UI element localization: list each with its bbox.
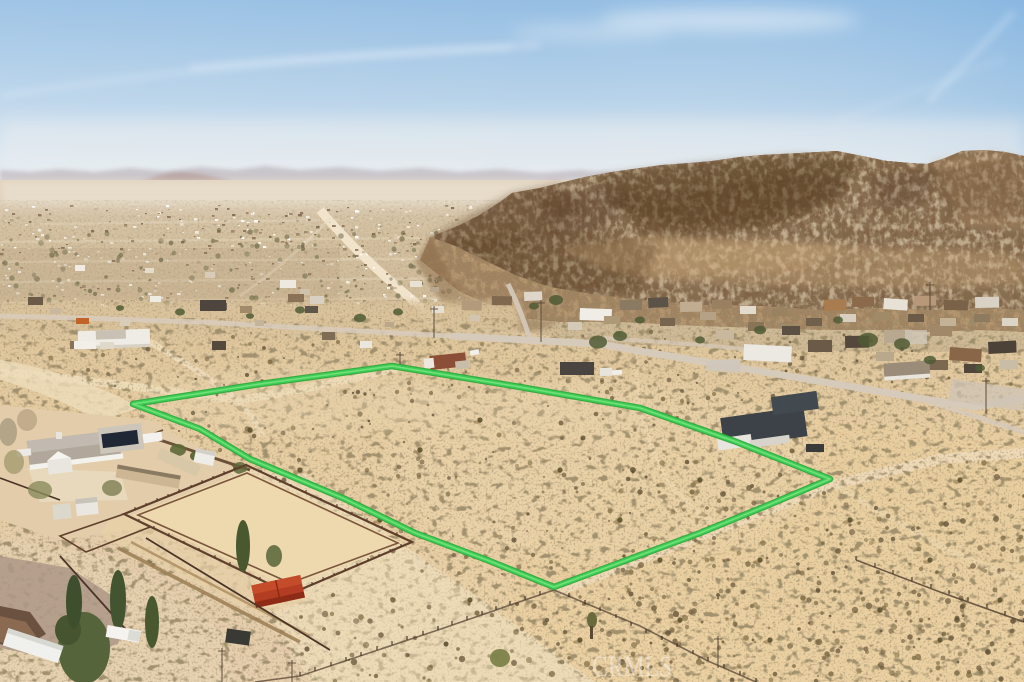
svg-text:CRMLS: CRMLS [592,650,672,682]
